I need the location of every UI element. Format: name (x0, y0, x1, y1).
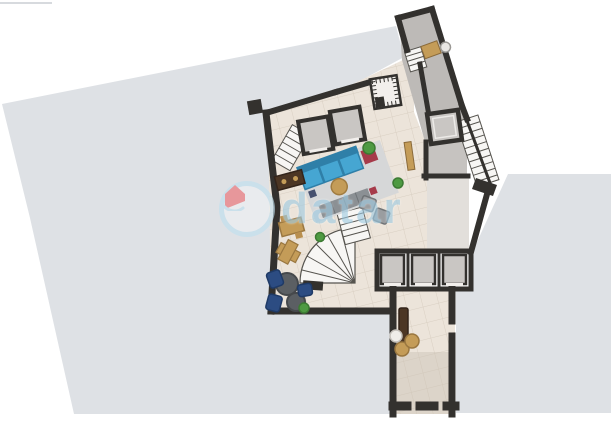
elevator-bay-3 (443, 255, 466, 286)
plant (393, 178, 403, 188)
armchair-navy (297, 283, 313, 297)
elevator-c (427, 110, 462, 144)
wall-corner-block (247, 99, 263, 115)
plant (299, 303, 309, 313)
stool (405, 334, 419, 348)
elevator-bank-bottom (377, 251, 471, 289)
elevator-b (330, 107, 365, 145)
top-edge-artifact (0, 2, 52, 4)
side-room-floor (427, 178, 469, 250)
elevator-bay-2 (412, 255, 435, 286)
floorplan-image: datar (0, 0, 611, 432)
elevator-a (298, 116, 333, 154)
plant (363, 142, 375, 154)
armchair-navy (265, 293, 283, 312)
elevator-bay-1 (381, 255, 404, 286)
elevator-core-hatched (370, 75, 401, 109)
floorplan-svg (0, 0, 611, 432)
round-rug (390, 330, 402, 342)
plant (316, 233, 325, 242)
